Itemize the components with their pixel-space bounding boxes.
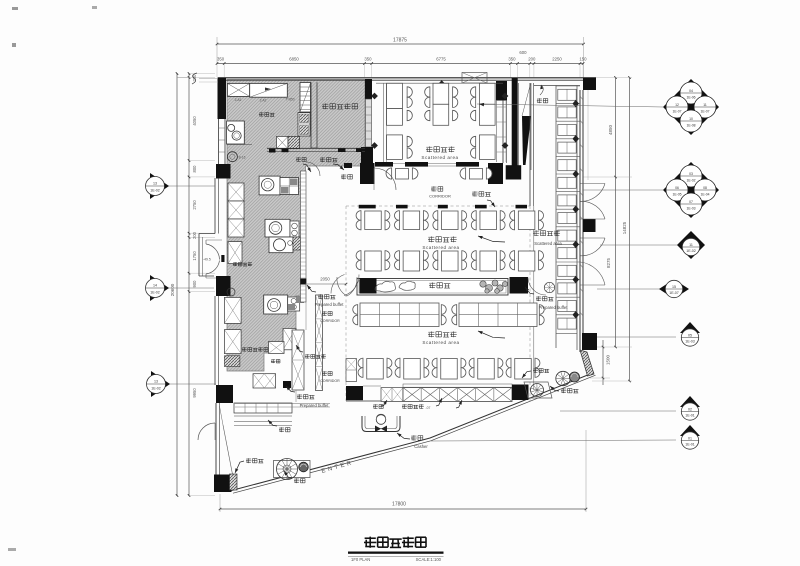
svg-text:CORRIDOR: CORRIDOR xyxy=(320,319,340,323)
svg-text:CORRIDOR: CORRIDOR xyxy=(320,379,340,383)
svg-text:01: 01 xyxy=(688,437,692,441)
svg-text:20600: 20600 xyxy=(170,283,175,296)
svg-text:14825: 14825 xyxy=(622,221,627,234)
svg-text:9950: 9950 xyxy=(192,388,197,398)
svg-text:-07: -07 xyxy=(426,406,431,410)
svg-text:1E-07: 1E-07 xyxy=(700,110,709,114)
svg-text:6775: 6775 xyxy=(436,57,446,62)
svg-text:Scattered area: Scattered area xyxy=(534,241,562,246)
svg-text:1E-08: 1E-08 xyxy=(686,124,695,128)
svg-text:CORRIDOR: CORRIDOR xyxy=(429,194,451,199)
svg-text:800: 800 xyxy=(192,165,197,173)
svg-text:10: 10 xyxy=(689,117,693,121)
svg-text:900: 900 xyxy=(192,280,197,288)
svg-text:1E-07: 1E-07 xyxy=(669,291,679,295)
svg-text:8275: 8275 xyxy=(606,257,611,268)
svg-text:13: 13 xyxy=(154,380,158,384)
svg-text:1E-07: 1E-07 xyxy=(672,110,681,114)
svg-text:4050: 4050 xyxy=(192,116,197,126)
svg-text:4850: 4850 xyxy=(608,124,613,135)
svg-text:02: 02 xyxy=(688,408,692,412)
svg-text:600: 600 xyxy=(519,50,527,55)
svg-text:2050: 2050 xyxy=(320,277,330,282)
svg-text:04: 04 xyxy=(689,89,693,93)
svg-text:Prepared buffet: Prepared buffet xyxy=(539,305,569,310)
svg-text:05: 05 xyxy=(688,334,692,338)
svg-text:13: 13 xyxy=(153,182,157,186)
svg-text:Prepared buffet: Prepared buffet xyxy=(300,403,330,408)
svg-text:1E-01: 1E-01 xyxy=(685,414,695,418)
svg-text:17800: 17800 xyxy=(392,502,406,508)
svg-text:Scattered area: Scattered area xyxy=(422,245,459,250)
svg-text:1E-06: 1E-06 xyxy=(686,96,695,100)
svg-text:1500: 1500 xyxy=(606,354,611,365)
svg-text:200: 200 xyxy=(528,57,536,62)
svg-text:-49.5: -49.5 xyxy=(203,258,211,262)
svg-text:12: 12 xyxy=(675,103,679,107)
svg-text:1E-02: 1E-02 xyxy=(686,249,696,253)
svg-text:1E-03: 1E-03 xyxy=(685,340,695,344)
svg-text:T=850: T=850 xyxy=(285,98,294,102)
svg-text:08: 08 xyxy=(703,186,707,190)
svg-text:350: 350 xyxy=(217,57,225,62)
svg-text:2-A1: 2-A1 xyxy=(235,98,242,102)
svg-text:2750: 2750 xyxy=(192,200,197,210)
svg-text:350: 350 xyxy=(364,57,372,62)
svg-text:17875: 17875 xyxy=(393,38,407,44)
svg-text:1E-04: 1E-04 xyxy=(700,193,709,197)
svg-text:1E-03: 1E-03 xyxy=(686,207,695,211)
svg-text:1E-02: 1E-02 xyxy=(151,387,161,391)
svg-text:07: 07 xyxy=(689,200,693,204)
svg-text:Scattered area: Scattered area xyxy=(421,155,458,160)
svg-text:1F0 PLAN: 1F0 PLAN xyxy=(351,557,370,562)
svg-text:2250: 2250 xyxy=(552,57,562,62)
svg-text:1E-01: 1E-01 xyxy=(685,443,695,447)
svg-text:11: 11 xyxy=(703,103,707,107)
svg-text:1E-05: 1E-05 xyxy=(672,193,681,197)
svg-text:1E-02: 1E-02 xyxy=(150,291,160,295)
svg-text:14: 14 xyxy=(153,284,157,288)
svg-text:150: 150 xyxy=(579,57,587,62)
svg-text:06: 06 xyxy=(675,186,679,190)
svg-text:200: 200 xyxy=(192,231,197,239)
svg-text:1750: 1750 xyxy=(192,251,197,261)
svg-text:11: 11 xyxy=(689,243,693,247)
svg-text:B-16: B-16 xyxy=(239,156,246,160)
svg-text:1E-02: 1E-02 xyxy=(686,179,695,183)
svg-text:Scattered area: Scattered area xyxy=(422,340,459,345)
svg-text:Casher: Casher xyxy=(414,444,428,449)
svg-text:6850: 6850 xyxy=(289,57,299,62)
svg-text:1E-02: 1E-02 xyxy=(150,189,160,193)
svg-text:Prepared buffet: Prepared buffet xyxy=(315,302,345,307)
svg-text:03: 03 xyxy=(689,172,693,176)
svg-text:350: 350 xyxy=(508,57,516,62)
svg-text:15: 15 xyxy=(672,285,676,289)
svg-text:SCALE:1:100: SCALE:1:100 xyxy=(416,557,442,562)
svg-text:2-A2: 2-A2 xyxy=(260,99,267,103)
